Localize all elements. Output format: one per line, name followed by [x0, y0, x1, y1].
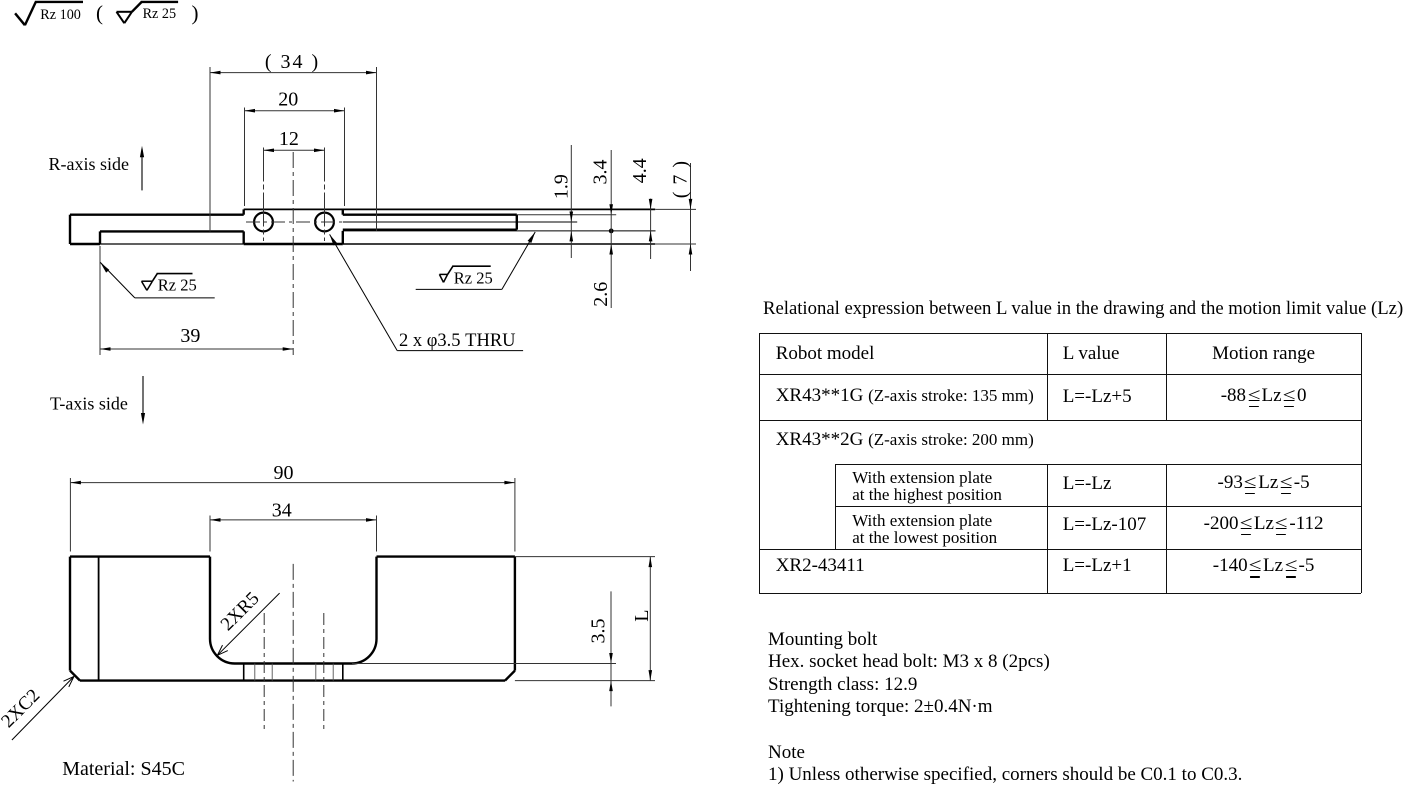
svg-text:( 34 ): ( 34 )	[265, 51, 320, 73]
svg-text:2XC2: 2XC2	[0, 685, 44, 732]
svg-text:( 7 ): ( 7 )	[669, 160, 691, 198]
svg-text:): )	[192, 1, 199, 25]
svg-text:2 x φ3.5 THRU: 2 x φ3.5 THRU	[399, 331, 516, 351]
svg-text:Rz 100: Rz 100	[40, 7, 81, 23]
svg-text:1.9: 1.9	[550, 174, 572, 199]
svg-text:Rz 25: Rz 25	[158, 276, 197, 295]
svg-text:12: 12	[279, 128, 299, 150]
svg-text:20: 20	[278, 89, 298, 111]
svg-text:3.5: 3.5	[588, 619, 610, 644]
svg-text:Rz 25: Rz 25	[143, 6, 177, 22]
svg-text:34: 34	[272, 499, 292, 521]
svg-text:Rz 25: Rz 25	[454, 268, 493, 287]
svg-text:90: 90	[274, 462, 294, 484]
svg-text:2.6: 2.6	[590, 282, 612, 307]
svg-text:Material: S45C: Material: S45C	[62, 758, 185, 780]
svg-text:4.4: 4.4	[629, 158, 651, 183]
svg-text:2XR5: 2XR5	[217, 588, 264, 635]
svg-text:T-axis side: T-axis side	[50, 394, 128, 414]
svg-text:3.4: 3.4	[590, 160, 612, 185]
svg-text:(: (	[96, 1, 103, 25]
svg-text:R-axis side: R-axis side	[49, 154, 130, 174]
svg-text:L: L	[631, 610, 653, 622]
svg-text:39: 39	[180, 325, 200, 347]
